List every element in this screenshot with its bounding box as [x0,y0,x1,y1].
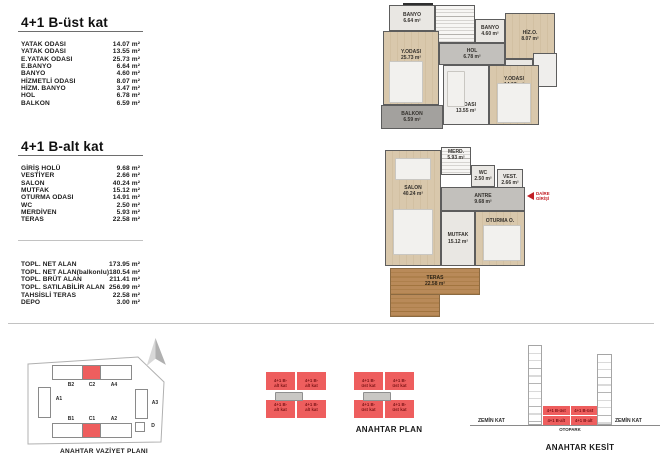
building-label-a1: A1 [51,396,67,402]
room-name: MUTFAK [21,187,49,194]
area-row: HİZM. BANYO3.47 m² [21,85,140,92]
stairs-upper [435,5,475,43]
furniture-bed [497,83,531,123]
total-label: TOPL. NET ALAN(balkonlu) [21,269,109,276]
room-area: 25.73 m² [113,56,140,63]
total-value: 256.99 m² [109,284,140,291]
room-name: YATAK ODASI [21,41,66,48]
key-plan: 4+1 B-alt kat 4+1 B-alt kat 4+1 B-alt ka… [264,371,424,435]
area-row: YATAK ODASI14.07 m² [21,41,140,48]
otopark-label: OTOPARK [543,427,597,432]
total-value: 180.54 m² [109,269,140,276]
key-plan-caption: ANAHTAR PLAN [334,425,444,434]
room-name: HİZM. BANYO [21,85,66,92]
key-section-caption: ANAHTAR KESİT [525,443,635,452]
ground-line [470,425,660,426]
total-label: DEPO [21,299,40,306]
key-section: 4+1 B-üst 4+1 B-üst 4+1 B-alt 4+1 B-alt … [470,338,660,460]
room-area: 6.64 m² [117,63,140,70]
room-name: BALKON [21,100,50,107]
upper-floor-area-table: YATAK ODASI14.07 m² YATAK ODASI13.55 m² … [21,41,140,107]
total-value: 3.00 m² [117,299,140,306]
room-label: HİZ.O.8.07 m² [521,30,538,43]
upper-floor-plan: BANYO6.64 m² Y.ODASI25.73 m² BANYO4.60 m… [381,3,559,130]
furniture-bed [447,71,465,107]
room-area: 9.68 m² [117,165,140,172]
entrance-label: DAİRE GİRİŞİ [536,191,550,202]
totals-table: TOPL. NET ALAN173.95 m² TOPL. NET ALAN(b… [21,261,140,307]
key-plan-block-alt: 4+1 B-alt kat 4+1 B-alt kat 4+1 B-alt ka… [266,372,326,418]
room-label: BANYO6.64 m² [403,12,421,25]
terrace-deck [390,294,440,317]
unit-alt-cell: 4+1 B-alt [571,416,598,425]
section-tower-left [528,345,542,425]
room-label: BALKON6.59 m² [401,111,422,124]
total-row: TOPL. NET ALAN173.95 m² [21,261,140,269]
area-row: E.YATAK ODASI25.73 m² [21,56,140,63]
room-label: MUTFAK15.12 m² [448,232,469,245]
lower-floor-area-table: GİRİŞ HOLÜ9.68 m² VESTİYER2.66 m² SALON4… [21,165,140,224]
room-label: Y.ODASI25.73 m² [401,49,421,62]
furniture-sofa [483,225,521,261]
area-row: HİZMETLİ ODASI8.07 m² [21,78,140,85]
room-label: TERAS22.58 m² [391,275,479,288]
page-separator-line [8,323,654,324]
lower-floor-plan: SALON40.24 m² MERD.5.93 m² WC2.50 m² VES… [383,147,555,319]
total-row: TAHSİSLİ TERAS22.58 m² [21,292,140,300]
room-name: YATAK ODASI [21,48,66,55]
stairs-lower: MERD.5.93 m² [441,147,471,175]
elevator-core [354,390,414,400]
elevator-core [266,390,326,400]
section-unit-cells: 4+1 B-üst 4+1 B-üst 4+1 B-alt 4+1 B-alt [543,406,597,425]
room-area: 6.59 m² [117,100,140,107]
title-underline [18,155,143,156]
building-label-a2: A2 [106,416,122,422]
room-label: BANYO4.60 m² [481,25,499,38]
furniture-bed [389,61,423,103]
ground-floor-label-left: ZEMİN KAT [478,418,505,424]
total-row: TOPL. SATILABİLİR ALAN256.99 m² [21,284,140,292]
room-name: HİZMETLİ ODASI [21,78,76,85]
total-label: TAHSİSLİ TERAS [21,292,76,299]
room-name: WC [21,202,32,209]
area-row: VESTİYER2.66 m² [21,172,140,179]
north-arrow-icon [143,338,169,366]
room-area: 8.07 m² [117,78,140,85]
area-row: YATAK ODASI13.55 m² [21,48,140,55]
building-a1 [38,387,51,418]
separator-line [18,240,143,241]
total-label: TOPL. SATILABİLİR ALAN [21,284,105,291]
section-tower-right [597,354,612,425]
area-row: SALON40.24 m² [21,180,140,187]
building-d [135,422,145,432]
ground-floor-label-right: ZEMİN KAT [615,418,642,424]
furniture-sofa [393,209,433,255]
room-banyo: BANYO4.60 m² [475,19,505,43]
room-ebanyo: BANYO6.64 m² [389,5,435,31]
building-label-c2: C2 [84,382,100,388]
terrace-deck: TERAS22.58 m² [390,268,480,295]
room-area: 6.78 m² [117,92,140,99]
apartment-entrance-marker: DAİRE GİRİŞİ [527,191,550,202]
room-name: SALON [21,180,45,187]
area-row: HOL6.78 m² [21,92,140,99]
building-c2-highlight [82,365,101,380]
building-c1-highlight [82,423,101,438]
room-label: ANTRE9.68 m² [474,193,491,206]
total-value: 173.95 m² [109,261,140,268]
building-label-b1: B1 [63,416,79,422]
room-area: 14.91 m² [113,194,140,201]
area-row: OTURMA ODASI14.91 m² [21,194,140,201]
area-row: MUTFAK15.12 m² [21,187,140,194]
room-label: WC2.50 m² [474,170,491,183]
area-row: WC2.50 m² [21,202,140,209]
furniture-dining-table [395,158,431,180]
room-area: 2.50 m² [117,202,140,209]
building-label-a4: A4 [106,382,122,388]
site-plan-caption: ANAHTAR VAZİYET PLANI [35,448,173,455]
room-area: 40.24 m² [113,180,140,187]
room-name: HOL [21,92,35,99]
area-row: MERDİVEN5.93 m² [21,209,140,216]
building-label-d: D [145,423,161,429]
room-area: 3.47 m² [117,85,140,92]
unit-ust-cell: 4+1 B-üst [571,406,598,415]
room-antre: ANTRE9.68 m² [441,187,525,211]
unit-alt-cell: 4+1 B-alt [543,416,570,425]
upper-floor-title: 4+1 B-üst kat [21,15,108,30]
room-mutfak: MUTFAK15.12 m² [441,211,475,266]
room-name: GİRİŞ HOLÜ [21,165,60,172]
room-name: E.YATAK ODASI [21,56,72,63]
room-label: HOL6.78 m² [463,48,480,61]
room-area: 15.12 m² [113,187,140,194]
building-label-c1: C1 [84,416,100,422]
total-label: TOPL. BRÜT ALAN [21,276,82,283]
room-balkon: BALKON6.59 m² [381,105,443,129]
room-name: VESTİYER [21,172,54,179]
room-area: 2.66 m² [117,172,140,179]
building-label-a3: A3 [147,400,163,406]
room-area: 22.58 m² [113,216,140,223]
title-underline [18,31,143,32]
total-value: 211.41 m² [109,276,140,283]
room-label: VEST.2.66 m² [501,174,518,187]
room-area: 5.93 m² [117,209,140,216]
area-row: BANYO4.60 m² [21,70,140,77]
entrance-arrow-icon [527,192,534,200]
room-name: MERDİVEN [21,209,57,216]
room-label: SALON40.24 m² [403,185,423,198]
room-name: BANYO [21,70,45,77]
total-row: TOPL. BRÜT ALAN211.41 m² [21,276,140,284]
room-name: OTURMA ODASI [21,194,74,201]
key-plan-block-ust: 4+1 B-üst kat 4+1 B-üst kat 4+1 B-üst ka… [354,372,414,418]
room-area: 13.55 m² [113,48,140,55]
area-row: TERAS22.58 m² [21,216,140,223]
floor-plan-brochure-page: 4+1 B-üst kat YATAK ODASI14.07 m² YATAK … [0,0,660,466]
area-row: BALKON6.59 m² [21,100,140,107]
room-area: 14.07 m² [113,41,140,48]
room-wc: WC2.50 m² [471,165,495,187]
room-area: 4.60 m² [117,70,140,77]
total-label: TOPL. NET ALAN [21,261,77,268]
unit-ust-cell: 4+1 B-üst [543,406,570,415]
area-row: E.BANYO6.64 m² [21,63,140,70]
room-name: E.BANYO [21,63,52,70]
site-plan: B2 C2 A4 A1 A3 B1 C1 A2 D ANAHTAR VAZİYE… [25,338,173,462]
total-row: DEPO3.00 m² [21,299,140,307]
room-name: TERAS [21,216,44,223]
building-label-b2: B2 [63,382,79,388]
total-value: 22.58 m² [113,292,140,299]
lower-floor-title: 4+1 B-alt kat [21,139,104,154]
room-hol: HOL6.78 m² [439,43,505,65]
room-label: MERD.5.93 m² [442,149,470,162]
